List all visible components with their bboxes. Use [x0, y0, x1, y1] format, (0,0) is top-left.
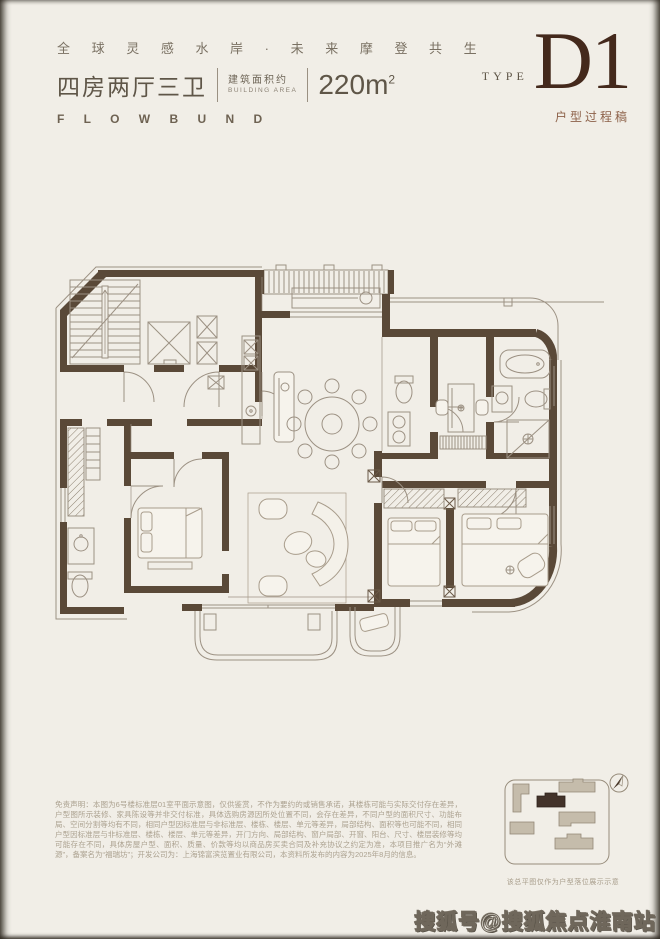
- vanity: [492, 386, 512, 412]
- area-label-en: BUILDING AREA: [228, 87, 297, 95]
- watermark-text: 搜狐号@搜狐焦点淮南站: [415, 906, 656, 936]
- sofa-set: [248, 493, 348, 603]
- site-plan: 该总平图仅作为户型落位展示示意: [493, 770, 633, 887]
- bay-terrace: [350, 607, 400, 656]
- type-block: TYPE D1 户型过程稿: [470, 22, 630, 125]
- site-plan-caption: 该总平图仅作为户型落位展示示意: [493, 877, 633, 887]
- type-code: D1: [534, 22, 630, 100]
- unit-title-row: 四房两厅三卫 建筑面积约 BUILDING AREA 220m2: [57, 64, 395, 106]
- area-label-stack: 建筑面积约 BUILDING AREA: [228, 75, 297, 96]
- balcony: [195, 611, 337, 660]
- brand-logotype: F L O W B U N D: [57, 112, 270, 126]
- elevator: [148, 322, 190, 364]
- floor-plan-svg: [52, 256, 609, 688]
- radiator: [440, 436, 486, 449]
- bedroom-master: [458, 489, 548, 586]
- area-value: 220m2: [318, 69, 395, 101]
- site-building-highlighted: [537, 793, 565, 807]
- site-buildings: [510, 779, 595, 849]
- bedroom-left: [68, 428, 202, 569]
- ac-ledge: [292, 288, 380, 308]
- louver-screen: [258, 265, 394, 294]
- bathroom-master: [492, 350, 550, 458]
- divider: [307, 68, 308, 102]
- wardrobe-left: [68, 428, 84, 516]
- site-plan-svg: [493, 770, 633, 870]
- wardrobe-master: [458, 489, 526, 507]
- bed-1: [138, 508, 202, 569]
- area-label-cn: 建筑面积约: [228, 75, 297, 88]
- bathroom-left: [68, 528, 94, 597]
- type-label: TYPE: [482, 69, 528, 84]
- toilet: [72, 575, 88, 597]
- divider: [217, 68, 218, 102]
- slogan-text: 全 球 灵 感 水 岸 · 未 来 摩 登 共 生: [57, 38, 486, 57]
- bathtub: [500, 350, 550, 378]
- floor-plan: [52, 256, 609, 688]
- type-note: 户型过程稿: [470, 108, 630, 125]
- wardrobe-middle: [384, 489, 444, 508]
- unit-title: 四房两厅三卫: [57, 68, 207, 102]
- vanity: [68, 528, 94, 564]
- disclaimer-text: 免责声明：本图为6号楼标准层01室平面示意图，仅供鉴赏，不作为要约的或销售承诺，…: [55, 800, 462, 860]
- vanity: [388, 412, 410, 446]
- floor-lamp: [506, 566, 514, 574]
- bedroom-middle: [384, 489, 444, 586]
- toilet: [396, 381, 412, 403]
- kitchen-island: [274, 372, 294, 442]
- bathroom-center: [388, 376, 413, 446]
- dining-table: [287, 379, 377, 469]
- compass-icon: [610, 774, 628, 792]
- service-shafts: [197, 316, 224, 389]
- bed-2: [388, 518, 440, 586]
- bed-master: [462, 514, 548, 586]
